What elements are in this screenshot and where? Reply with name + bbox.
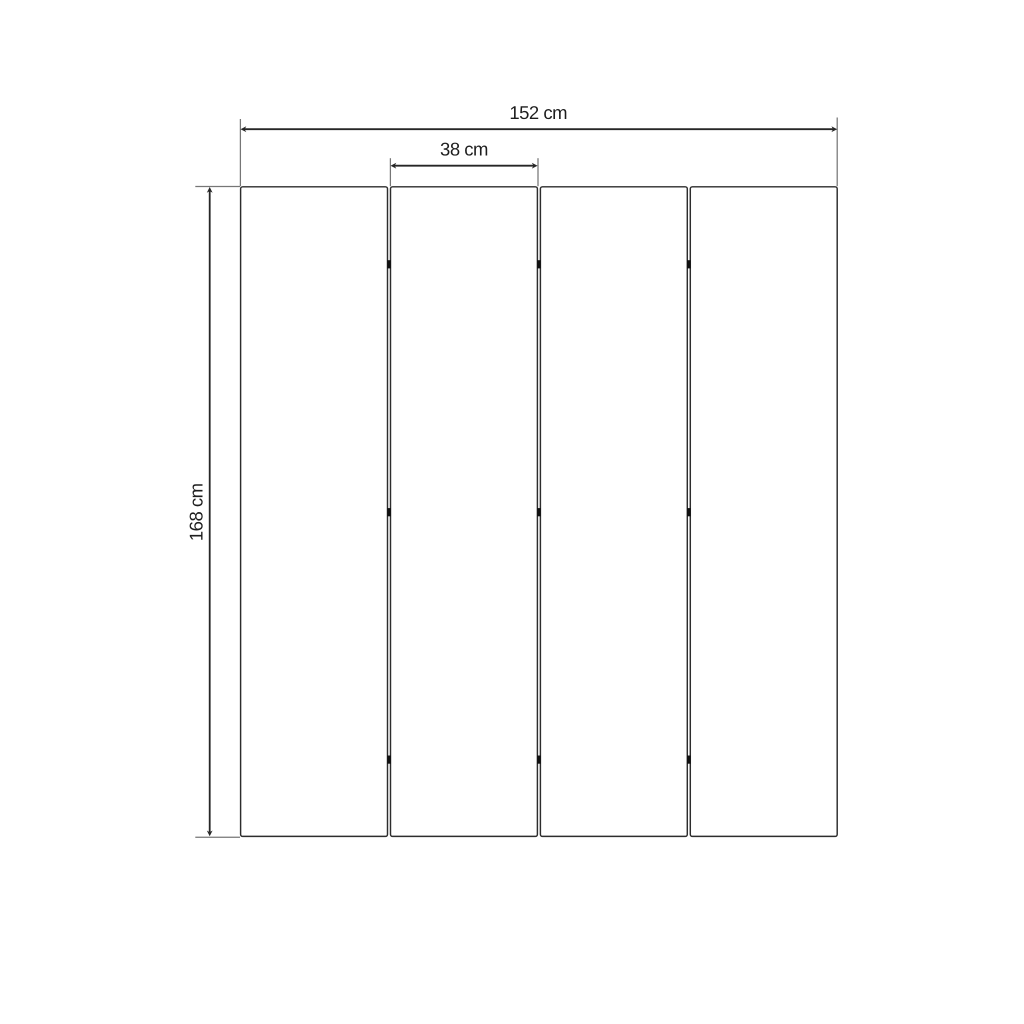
- svg-text:152 cm: 152 cm: [509, 102, 567, 123]
- svg-text:38 cm: 38 cm: [440, 139, 488, 160]
- svg-text:168 cm: 168 cm: [185, 483, 206, 541]
